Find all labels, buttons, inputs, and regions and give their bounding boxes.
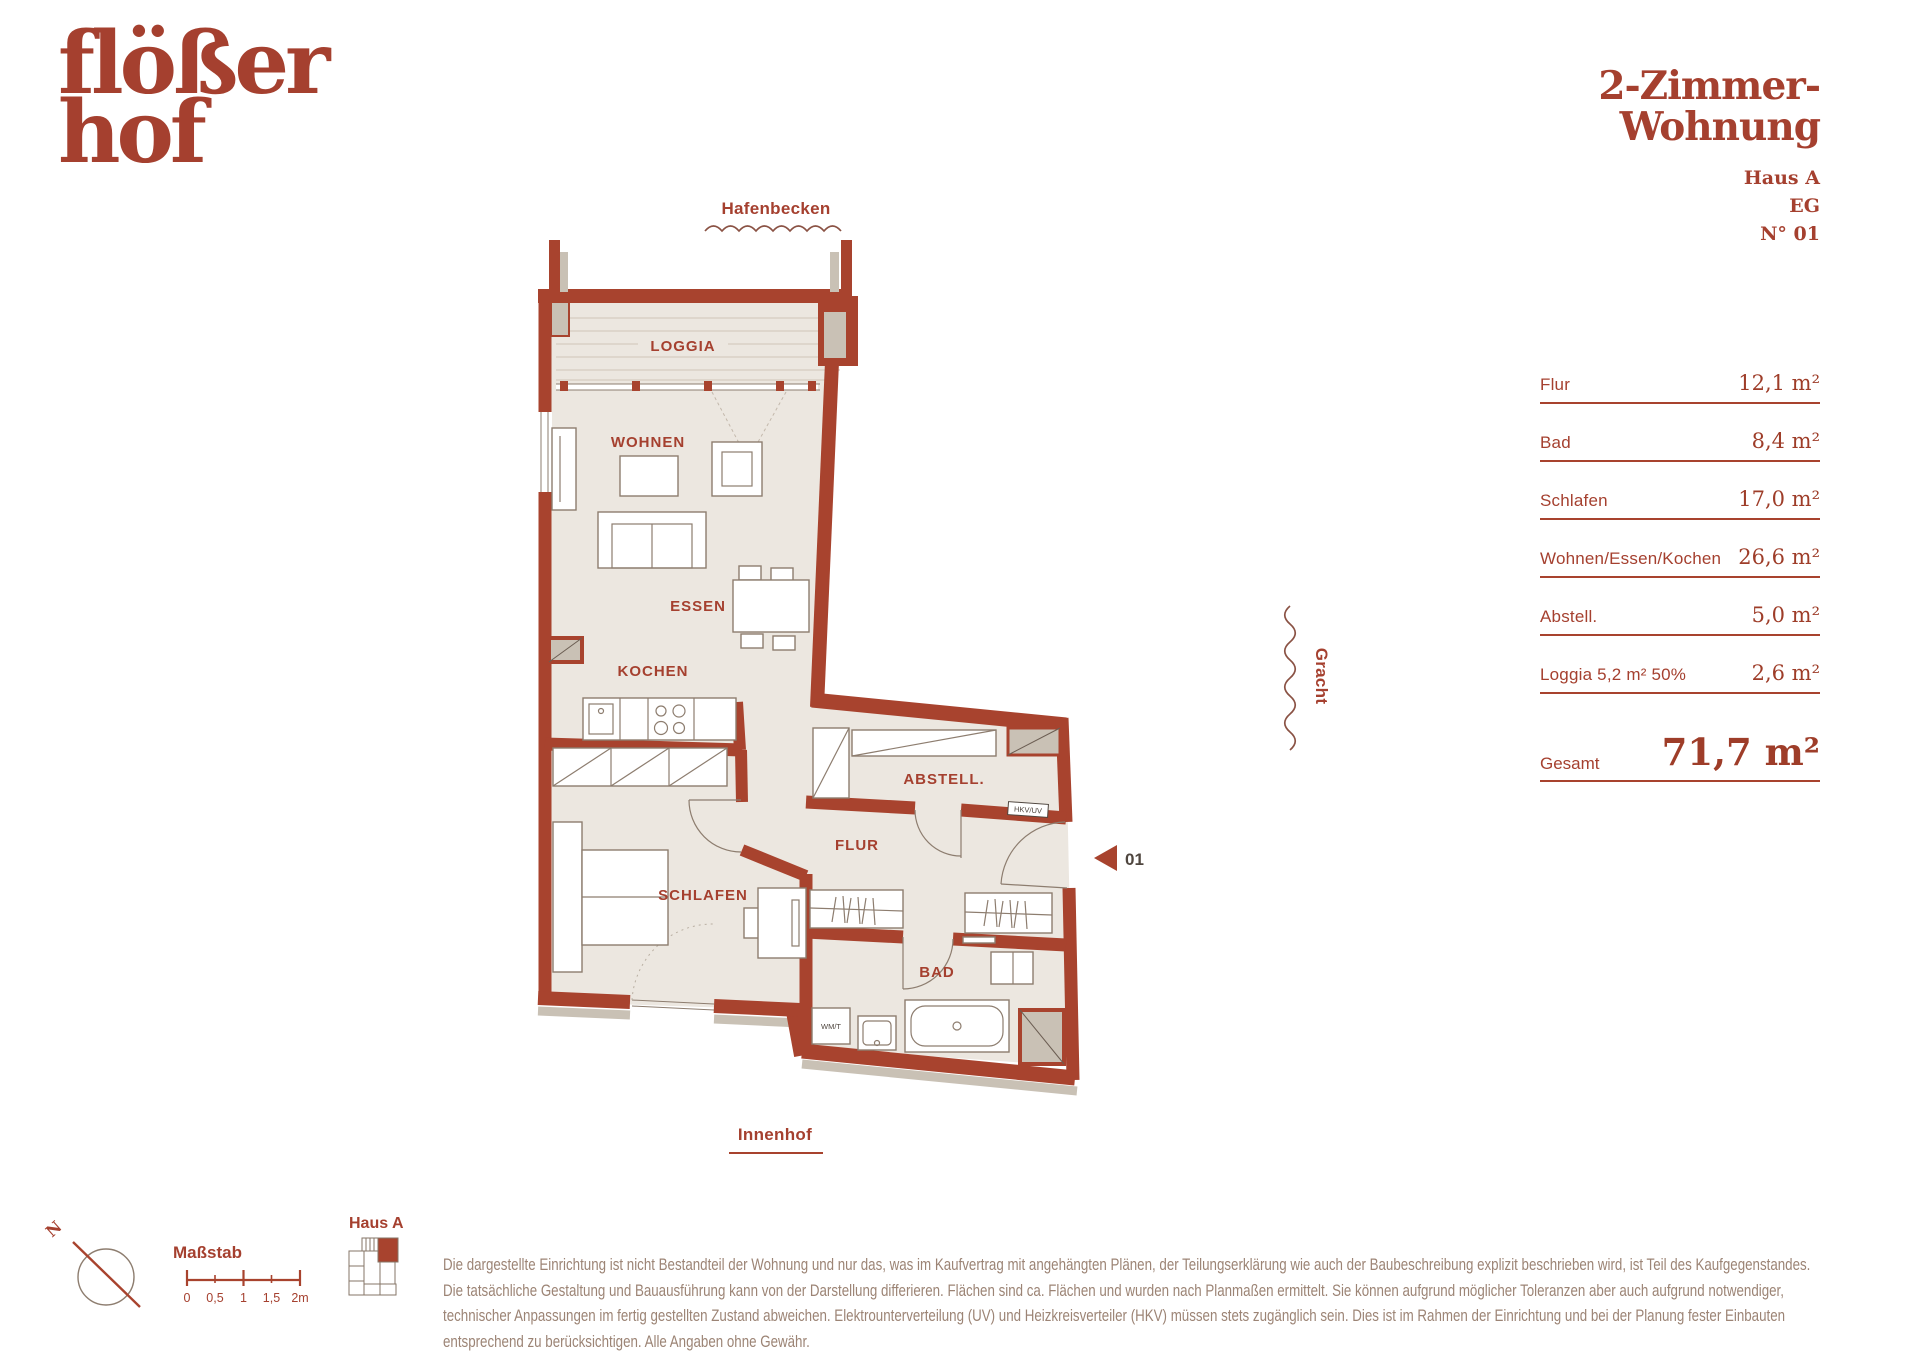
water-label-top: Hafenbecken (705, 199, 841, 231)
wohnen-side-window (537, 412, 552, 492)
entry-number: 01 (1125, 850, 1144, 869)
water-wave-icon (1285, 606, 1296, 750)
washing-machine: WM/T (812, 1008, 850, 1044)
tv-unit (712, 442, 762, 496)
room-label-essen: ESSEN (670, 598, 726, 615)
north-indicator: N (42, 1217, 140, 1307)
scale-title: Maßstab (173, 1243, 242, 1262)
scale-tick-3: 1,5 (263, 1291, 280, 1305)
gracht-label: Gracht (1312, 648, 1331, 705)
water-wave-icon (705, 226, 841, 231)
scale-bar: Maßstab 0 0,5 1 1,5 2m (173, 1243, 309, 1305)
innenhof-label: Innenhof (738, 1125, 812, 1144)
room-label-abstell: ABSTELL. (903, 771, 984, 788)
room-label-schlafen: SCHLAFEN (658, 887, 748, 904)
coffee-table (620, 456, 678, 496)
wardrobe-flur-right (965, 893, 1052, 933)
room-label-loggia: LOGGIA (650, 338, 715, 355)
wardrobe-flur-left (810, 890, 903, 928)
bathtub (905, 1000, 1009, 1052)
washbasin (858, 1016, 896, 1050)
water-label-right: Gracht (1285, 606, 1331, 750)
scale-tick-4: 2m (291, 1291, 308, 1305)
wm-label: WM/T (821, 1022, 841, 1031)
kitchen-counter (583, 698, 736, 740)
floor-plan-svg: Hafenbecken Gracht Innenhof (0, 0, 1920, 1357)
hkv-tag: HKV/UV (1008, 802, 1049, 818)
room-label-kochen: KOCHEN (617, 663, 688, 680)
entry-arrow-icon (1094, 845, 1117, 871)
brochure-page: flößer hof 2-Zimmer- Wohnung Haus A EG N… (0, 0, 1920, 1357)
disclaimer-text: Die dargestellte Einrichtung ist nicht B… (443, 1253, 1817, 1355)
building-keyplan: Haus A (349, 1215, 404, 1295)
scale-tick-0: 0 (184, 1291, 191, 1305)
sofa (598, 512, 706, 568)
scale-tick-2: 1 (240, 1291, 247, 1305)
room-label-bad: BAD (919, 964, 955, 981)
north-letter: N (42, 1217, 66, 1241)
scale-tick-1: 0,5 (206, 1291, 223, 1305)
keyplan-highlighted-unit (378, 1238, 398, 1262)
entry-marker: 01 (1094, 845, 1144, 871)
wardrobe-schlafen (553, 748, 727, 786)
courtyard-label: Innenhof (729, 1125, 823, 1153)
sideboard (552, 428, 576, 510)
room-label-flur: FLUR (835, 837, 879, 854)
hafenbecken-label: Hafenbecken (721, 199, 830, 218)
room-label-wohnen: WOHNEN (611, 434, 685, 451)
keyplan-title: Haus A (349, 1215, 404, 1232)
